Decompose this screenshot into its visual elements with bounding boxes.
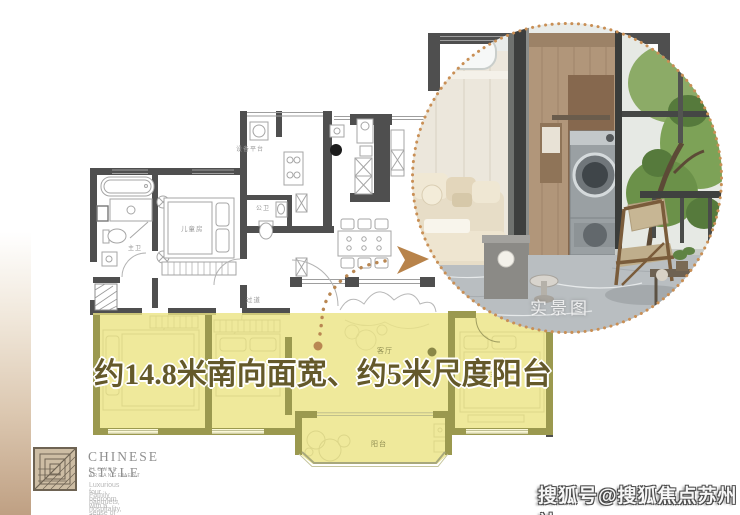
room-label-corridor: 过道: [246, 294, 261, 304]
footer-line2: Family banquets, hospitality, and leisur…: [89, 492, 122, 515]
room-label-living-room: 客厅: [377, 346, 393, 356]
room-label-guest-bath: 公卫: [256, 203, 270, 212]
promo-graphic: 设备平台 公卫 儿童房 主卫 过道 客厅 主人房 阳台 约14.8米南向面宽、约…: [0, 0, 740, 515]
photo-circle: 实景图: [412, 23, 722, 333]
room-label-balcony: 阳台: [371, 439, 387, 449]
photo-caption: 实景图: [412, 294, 708, 319]
footer-subtitle: FLOWER ARRANGEMENT: [89, 467, 141, 479]
watermark: 搜狐号@搜狐焦点苏州站: [538, 481, 740, 515]
headline-banner: 约14.8米南向面宽、约5米尺度阳台: [88, 358, 558, 391]
room-label-kids-room: 儿童房: [181, 223, 204, 233]
interior-photo-illustration: [412, 23, 722, 333]
arrow-icon: [397, 246, 429, 274]
room-label-master-bath: 主卫: [128, 243, 142, 252]
room-label-equipment-platform: 设备平台: [236, 144, 264, 153]
shaft-hatch: [95, 284, 117, 310]
brand-logo-icon: [33, 447, 77, 491]
